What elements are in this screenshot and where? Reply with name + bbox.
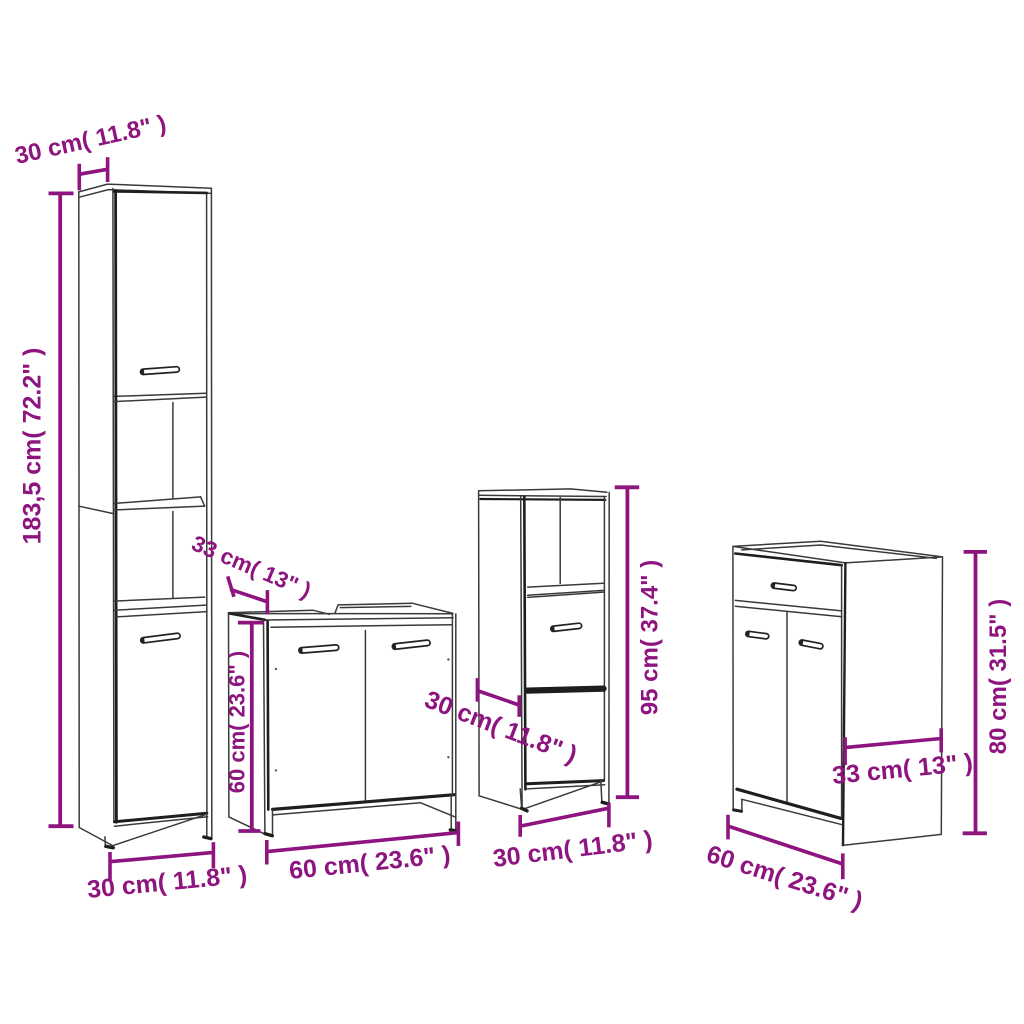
svg-text:60 cm( 23.6" ): 60 cm( 23.6" )	[225, 651, 250, 794]
svg-text:183,5 cm( 72.2" ): 183,5 cm( 72.2" )	[19, 348, 47, 545]
svg-text:80 cm( 31.5" ): 80 cm( 31.5" )	[985, 599, 1012, 754]
svg-text:95 cm( 37.4" ): 95 cm( 37.4" )	[637, 560, 664, 715]
